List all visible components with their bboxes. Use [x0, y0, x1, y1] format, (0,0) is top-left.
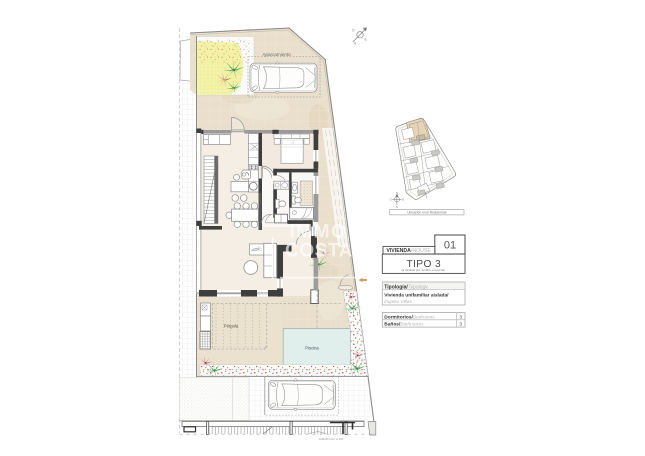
svg-text:Ubicación en el Residencial: Ubicación en el Residencial — [407, 211, 446, 215]
svg-text:VIVIENDA/HOUSE: VIVIENDA/HOUSE — [386, 248, 431, 254]
svg-text:COSTA: COSTA — [285, 241, 353, 262]
svg-text:O: O — [390, 198, 392, 202]
svg-text:Dormitorios/Bedrooms: Dormitorios/Bedrooms — [384, 314, 435, 320]
svg-text:01: 01 — [444, 240, 456, 252]
svg-text:Tipología/Typology: Tipología/Typology — [384, 284, 428, 290]
svg-text:Vivienda unifamiliar aislada/: Vivienda unifamiliar aislada/ — [384, 292, 449, 298]
svg-text:(a cambiar por nombre comercia: (a cambiar por nombre comercial) — [402, 268, 445, 272]
svg-text:N: N — [396, 191, 398, 195]
svg-text:Aparcamiento: Aparcamiento — [262, 52, 291, 57]
svg-text:Piscina: Piscina — [305, 346, 319, 351]
svg-text:Duplex Villas: Duplex Villas — [384, 299, 412, 305]
svg-text:3: 3 — [459, 322, 462, 328]
svg-text:S: S — [396, 205, 398, 209]
svg-text:E: E — [402, 198, 404, 202]
svg-text:O: O — [352, 29, 355, 33]
svg-text:IMMO: IMMO — [289, 222, 347, 243]
svg-text:Baños/Bathrooms: Baños/Bathrooms — [384, 322, 424, 328]
svg-text:3: 3 — [459, 314, 462, 320]
svg-text:JARDIN esc 1/100: JARDIN esc 1/100 — [319, 437, 344, 441]
svg-text:Pérgola: Pérgola — [224, 324, 239, 329]
